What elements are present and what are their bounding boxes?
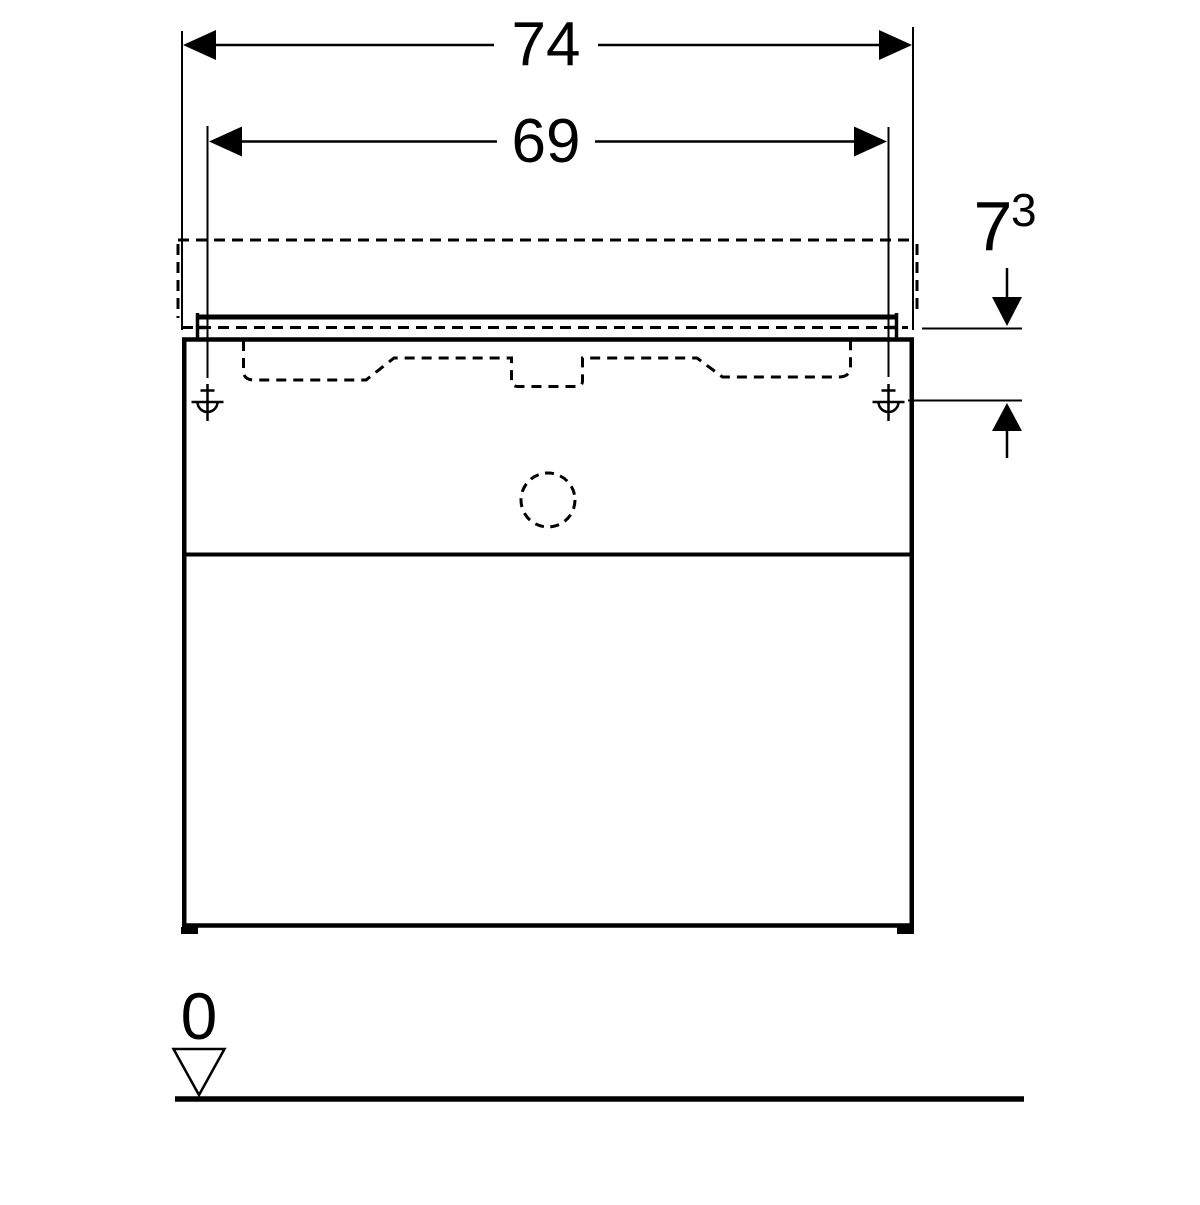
arrowhead-down-icon bbox=[992, 297, 1022, 326]
arrowhead-left-icon bbox=[183, 30, 216, 60]
cabinet-body bbox=[181, 340, 914, 935]
mounting-hole-right bbox=[873, 384, 905, 421]
dimension-value-7-superscript: 3 bbox=[1011, 184, 1037, 236]
cabinet-foot-right bbox=[897, 927, 914, 934]
arrowhead-up-icon bbox=[992, 403, 1022, 431]
technical-drawing-page: 74 69 bbox=[0, 0, 1200, 1200]
washbasin-dashed-outline bbox=[178, 240, 917, 328]
faucet-hole bbox=[521, 473, 575, 527]
ground-level-value: 0 bbox=[181, 979, 218, 1053]
dimension-value-7: 7 bbox=[974, 187, 1013, 265]
dimension-value-69: 69 bbox=[512, 107, 581, 176]
level-triangle-icon bbox=[174, 1049, 225, 1095]
basin-bowl-hidden-contour bbox=[244, 341, 851, 387]
dimension-value-74: 74 bbox=[512, 10, 581, 79]
arrowhead-right-icon bbox=[879, 30, 912, 60]
ground-level: 0 bbox=[174, 979, 1025, 1099]
arrowhead-right-icon bbox=[854, 127, 887, 157]
dimension-basin-to-fixing: 7 3 bbox=[908, 184, 1037, 458]
arrowhead-left-icon bbox=[209, 127, 242, 157]
mounting-hole-left bbox=[192, 384, 224, 421]
washbasin-slab bbox=[197, 313, 897, 338]
vanity-cabinet-dimension-drawing: 74 69 bbox=[0, 0, 1200, 1200]
cabinet-outline bbox=[184, 340, 912, 926]
cabinet-foot-left bbox=[181, 927, 198, 934]
